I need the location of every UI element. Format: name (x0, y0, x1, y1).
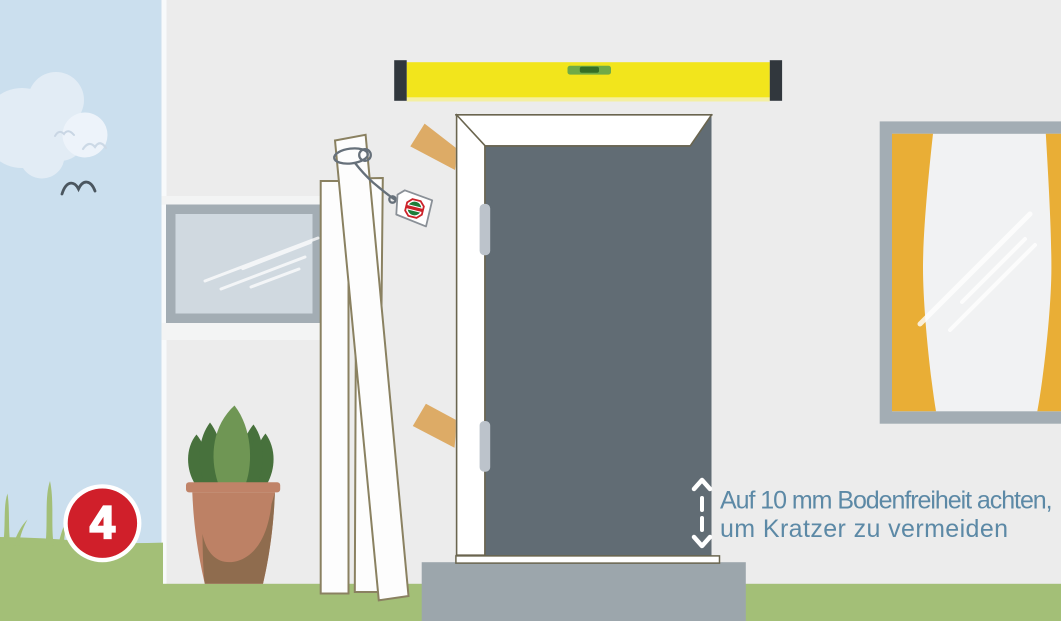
svg-text:4: 4 (90, 497, 115, 548)
svg-text:um Kratzer zu vermeiden: um Kratzer zu vermeiden (720, 515, 1008, 543)
svg-text:Auf 10 mm Bodenfreiheit achten: Auf 10 mm Bodenfreiheit achten, (720, 487, 1052, 515)
